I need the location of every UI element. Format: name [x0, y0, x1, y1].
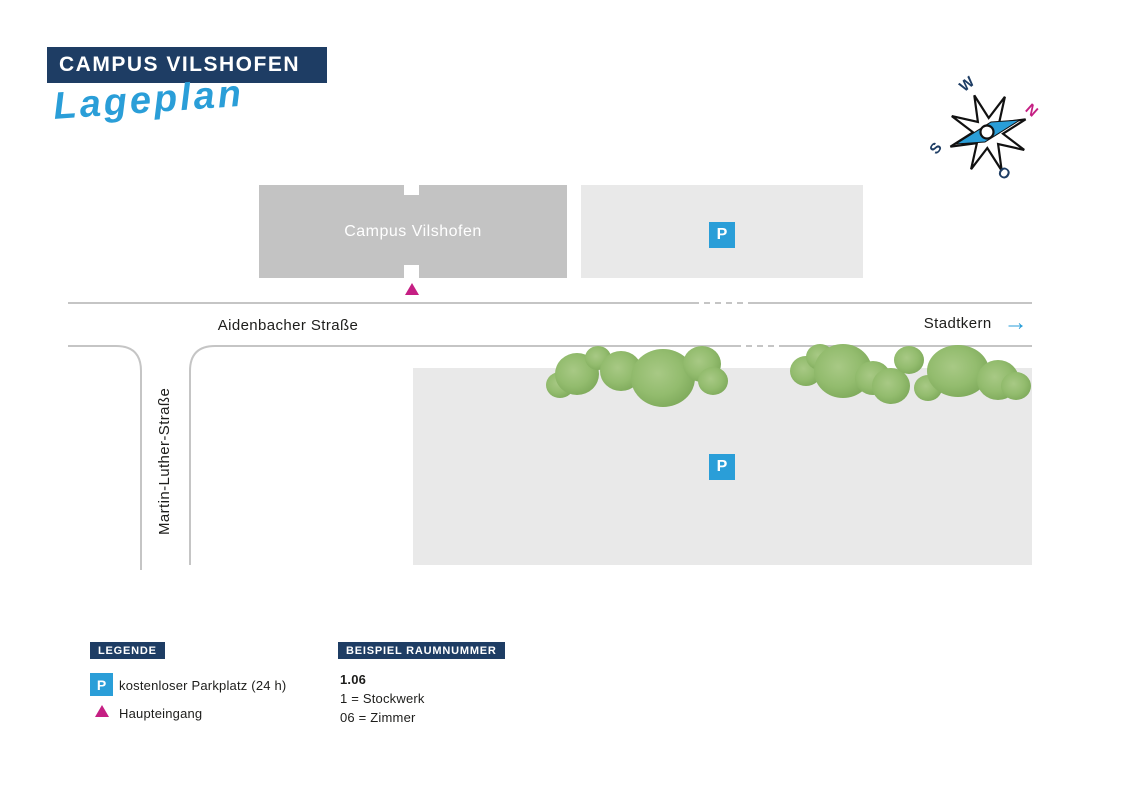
street-label-aidenbacher: Aidenbacher Straße: [160, 317, 416, 334]
room-example-block: 1.06 1 = Stockwerk 06 = Zimmer: [340, 670, 425, 727]
building-entrance-gap-south: [404, 265, 419, 278]
compass-east-label: O: [994, 163, 1014, 184]
compass-north-label: N: [1022, 101, 1041, 121]
legend-title: LEGENDE: [90, 642, 165, 659]
building-entrance-gap-north: [404, 185, 419, 195]
compass-west-label: W: [956, 73, 978, 95]
room-example-title: BEISPIEL RAUMNUMMER: [338, 642, 505, 659]
parking-icon: P: [709, 454, 735, 480]
legend-parking-icon: P: [90, 673, 113, 696]
direction-stadtkern: Stadtkern →: [924, 314, 1028, 332]
campus-building-label: Campus Vilshofen: [344, 223, 482, 241]
page-title-text: CAMPUS VILSHOFEN: [59, 53, 300, 77]
campus-building: Campus Vilshofen: [259, 185, 567, 278]
main-entrance-icon: [405, 283, 419, 295]
legend-parking-label: kostenloser Parkplatz (24 h): [119, 678, 286, 693]
campus-map-page: { "colors": { "navy": "#1e3d64", "accent…: [0, 0, 1123, 794]
legend-entrance-icon: [95, 705, 109, 717]
direction-stadtkern-label: Stadtkern: [924, 315, 992, 332]
compass-south-label: S: [926, 139, 946, 157]
legend-entrance-label: Haupteingang: [119, 706, 202, 721]
compass-icon: [950, 95, 1025, 170]
arrow-right-icon: →: [1004, 314, 1028, 332]
parking-icon: P: [709, 222, 735, 248]
room-example-room: 06 = Zimmer: [340, 708, 425, 727]
room-example-number: 1.06: [340, 670, 425, 689]
room-example-floor: 1 = Stockwerk: [340, 689, 425, 708]
street-label-martin-luther: Martin-Luther-Straße: [156, 366, 173, 556]
